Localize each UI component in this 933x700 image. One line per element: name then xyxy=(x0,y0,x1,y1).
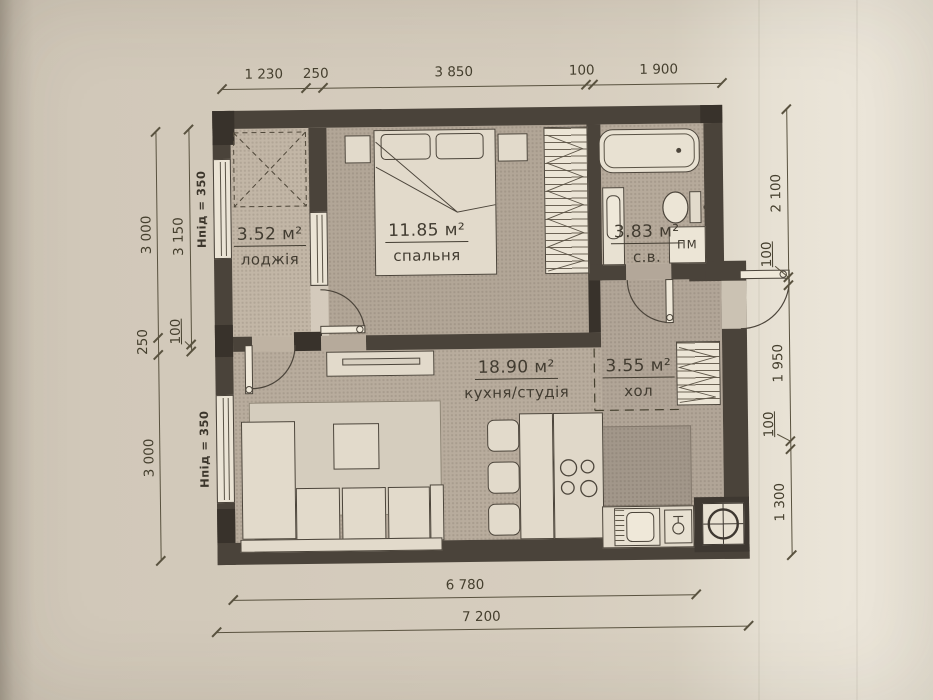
wardrobe-rail-zigzag xyxy=(547,135,585,271)
dimension-value: 100 xyxy=(761,411,777,437)
dimension-value: 2 100 xyxy=(768,174,784,213)
toilet-button xyxy=(703,205,707,209)
bathtub-drain xyxy=(676,148,681,153)
faucet-icon xyxy=(673,516,684,534)
room-label-hall: 3.55 м² хол xyxy=(602,356,674,401)
scanned-floorplan-photo: ПМ xyxy=(0,0,933,700)
room-label-kitchen: 18.90 м² кухня/студія xyxy=(464,357,569,402)
loggia-door xyxy=(245,345,296,394)
bedroom-door xyxy=(320,289,365,334)
room-name: спальня xyxy=(385,246,468,265)
dimension-value: 1 300 xyxy=(772,483,788,522)
room-name: кухня/студія xyxy=(464,383,569,402)
bathroom-door xyxy=(627,280,673,324)
dimension-value: 100 xyxy=(168,319,184,345)
dimension-value: 6 780 xyxy=(446,577,485,593)
dimension-value: 3 000 xyxy=(138,216,154,255)
room-area: 3.52 м² xyxy=(234,224,306,247)
wardrobe-rail-zigzag xyxy=(679,347,716,402)
dimension-value: 1 950 xyxy=(770,344,786,383)
dimension-value: 7 200 xyxy=(462,609,501,625)
room-area: 18.90 м² xyxy=(475,357,558,380)
dimension-value: 1 230 xyxy=(244,66,283,82)
room-area: 3.83 м² xyxy=(611,221,683,244)
entrance-door xyxy=(740,270,790,329)
room-area: 3.55 м² xyxy=(602,356,674,379)
vent-circle xyxy=(703,504,743,544)
dimension-value: 3 150 xyxy=(170,217,186,256)
floorplan: ПМ xyxy=(0,0,933,700)
dimension-value: 100 xyxy=(759,241,775,267)
dimension-value: 250 xyxy=(303,66,329,82)
dimension-value: 250 xyxy=(135,329,151,355)
room-name: с.в. xyxy=(611,247,683,266)
dimension-value: 3 850 xyxy=(434,64,473,80)
toilet-bowl xyxy=(663,192,688,223)
room-name: лоджія xyxy=(234,250,306,269)
loggia-dashed-zone xyxy=(233,132,306,207)
room-area: 11.85 м² xyxy=(385,220,468,243)
hob-burners xyxy=(560,459,596,496)
sill-height-label: Нпід = 350 xyxy=(194,170,209,248)
sill-height-label: Нпід = 350 xyxy=(197,410,212,488)
dimension-value: 3 000 xyxy=(141,439,157,478)
bed-blanket-fold xyxy=(376,141,496,213)
room-label-bathroom: 3.83 м² с.в. xyxy=(611,221,683,266)
dimension-value: 100 xyxy=(569,62,595,78)
room-label-bedroom: 11.85 м² спальня xyxy=(385,220,468,265)
room-label-loggia: 3.52 м² лоджія xyxy=(234,224,306,269)
dimension-value: 1 900 xyxy=(639,61,678,77)
room-name: хол xyxy=(603,382,675,401)
